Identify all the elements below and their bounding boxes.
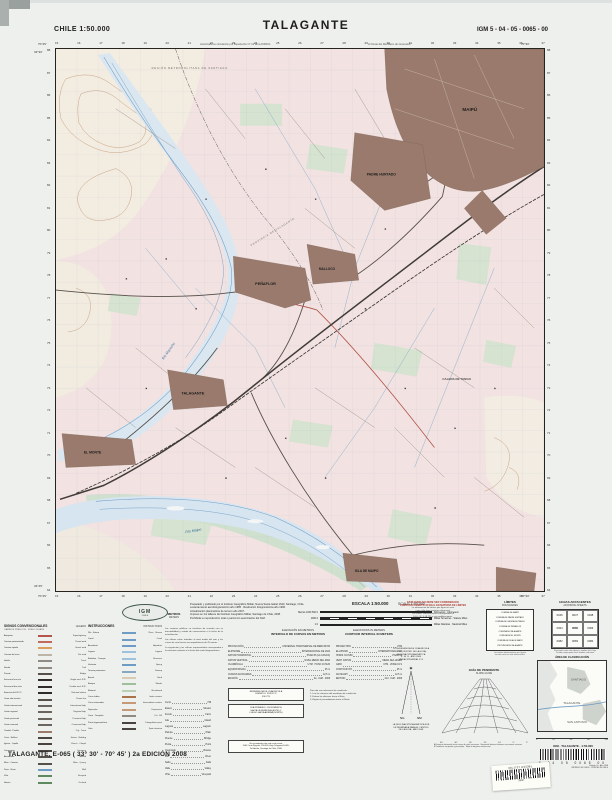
corner-nw-lon: 70°45' [38, 42, 46, 46]
refside-line: 3. Repita el procedimiento hacia el Nort… [310, 699, 382, 702]
scale-bar [320, 624, 432, 626]
grid-number: 68 [547, 498, 550, 502]
dotted-leader [171, 760, 204, 764]
declination-line: VARIACIÓN ANUAL 8´ E [388, 659, 434, 662]
legend-label-es: Límite provincial [4, 718, 36, 720]
map-label-calera: CALERA DE TANGO [442, 377, 471, 381]
grid-numbers-left: 8887868584838281807978777675747372717069… [47, 48, 50, 592]
commune-name: COMUNA DE PADRE HURTADO [487, 617, 533, 619]
legend-label-es: Autopista [4, 635, 36, 637]
legend-label-en: Vineyard [53, 775, 86, 777]
grid-number: 25 [276, 594, 279, 598]
legend-label-en: Power line [53, 698, 86, 700]
legend-label-en: Dirt road [53, 654, 86, 656]
legend-label-en: Paved road [53, 641, 86, 643]
legend-symbol [122, 645, 136, 647]
grid-number: 23 [232, 594, 235, 598]
commune-name: COMUNA DE TALAGANTE [487, 631, 533, 633]
grid-number: 18 [121, 41, 124, 45]
legend-symbol [38, 705, 52, 707]
legend-label-es: Laguna [88, 651, 120, 653]
legend-label-es: Ferrocarril dos vías [4, 686, 36, 688]
grid-number: 15 [55, 41, 58, 45]
legend-symbol [38, 679, 52, 681]
grid-reference-boxes: REFERENCIA DE CUADRÍCULAEJEMPLO: PUNTO P… [228, 688, 304, 721]
library-sticker: 33L1737 H533BL 33037 [491, 762, 551, 791]
legend-row: Cota Spot elevation [88, 726, 162, 732]
legend-label-es: Ciudad · Pueblo [4, 730, 36, 732]
legend-label-en: Canal [137, 638, 162, 640]
grid-number: 70 [47, 453, 50, 457]
meters-label: METROS METERS [162, 612, 186, 619]
legend-label-es: Estación de FF.CC. [4, 692, 36, 694]
legend-label-es: Terreno pantanoso [88, 670, 120, 672]
dotted-leader [252, 673, 322, 676]
scale-bar-left-label: Metros 1000 500 0 [282, 611, 320, 614]
grid-number: 35 [497, 41, 500, 45]
dotted-leader [343, 663, 382, 666]
meters-en: METERS [162, 616, 186, 619]
note-paragraph: Los caminos públicos se clasifican de ac… [165, 628, 223, 636]
legend-label-en: Spring [137, 664, 162, 666]
legend-symbol [38, 782, 52, 784]
legend-symbol [122, 728, 136, 730]
grid-number: 23 [232, 41, 235, 45]
legend-label-en: Sand [137, 677, 162, 679]
legend-symbol [38, 660, 52, 662]
grid-number: 67 [547, 521, 550, 525]
declination-diagram: ✶ NG NM [393, 664, 429, 722]
legend-label-en: Depression [137, 709, 162, 711]
legend-label-en: City · Town [53, 730, 86, 732]
map-label-talagante: TALAGANTE [181, 392, 204, 396]
legend-symbol [122, 683, 136, 685]
legend-symbol [38, 775, 52, 777]
map-label-penaflor: PEÑAFLOR [255, 281, 276, 286]
grid-number: 81 [47, 206, 50, 210]
marginal-notes: Los caminos públicos se clasifican de ac… [165, 628, 223, 655]
datum-table-es: PROYECCIÓN UNIVERSAL TRANSVERSAL DE MERC… [228, 645, 330, 682]
igm-logo-country: CHILE [142, 615, 148, 617]
grid-number: 66 [547, 543, 550, 547]
boundaries-panel: LÍMITES BOUNDARIES COMUNA DE MAIPÚCOMUNA… [482, 600, 538, 657]
dotted-leader [244, 645, 281, 648]
legend-label-en: Index contour [137, 696, 162, 698]
legend-label-es: Corte · Terraplén [88, 715, 120, 717]
edition-statement: TALAGANTE, E-065 ( 33° 30' - 70° 45' ) 2… [8, 751, 187, 758]
scale-title-es: ESCALA 1:50.000 [352, 601, 388, 606]
legend-label-en: Single track R.R. [53, 679, 86, 681]
citation-box: Se recomienda citar esta carta como:IGM,… [228, 740, 304, 753]
legend-label-en: Woods [137, 683, 162, 685]
legend-symbol [38, 647, 52, 649]
grid-number: 86 [547, 93, 550, 97]
barcode-bars [540, 749, 606, 760]
grid-number: 81 [547, 206, 550, 210]
legend-label-es: Línea alta tensión [4, 698, 36, 700]
legend-label-es: Pozo · Noria [4, 769, 36, 771]
legend-symbol [38, 763, 52, 765]
legend-symbol [38, 635, 52, 637]
dotted-leader [244, 663, 307, 666]
map-label-isla-de-maipo: ISLA DE MAIPO [355, 569, 379, 573]
legend-label-es: Matorral [88, 690, 120, 692]
datum-row: EDICIÓN 2a · IGM · 2008 [228, 677, 330, 682]
note-paragraph: La vegetación y los cultivos representad… [165, 647, 223, 653]
grid-number: 84 [547, 138, 550, 142]
legend-label-en: Provincial bdy. [53, 718, 86, 720]
grid-number: 79 [47, 251, 50, 255]
legend-symbol [38, 711, 52, 713]
note-paragraph: Las alturas están referidas al nivel med… [165, 639, 223, 645]
scale-bar-right-label: Millas Náuticas · Nautical Miles [432, 623, 467, 626]
slope-guide-panel: GUÍA DE PENDIENTE SLOPE GUIDE 45°30°20°1… [434, 668, 534, 749]
grid-number: 32 [431, 41, 434, 45]
grid-number: 32 [431, 594, 434, 598]
legend-label-es: Vertiente [88, 664, 120, 666]
instructions-panel: INSTRUCCIONES INSTRUCTIONS Río · Estero … [88, 624, 162, 732]
vocabulary-list: Cerro Hill Estero Stream Fundo Farm Isla… [165, 700, 211, 778]
classification-map: SANTIAGO TALAGANTE SAN ANTONIO [537, 660, 607, 732]
legend-symbol [38, 641, 52, 643]
sheet-number: IGM 5 - 04 - 05 - 0065 - 00 [477, 27, 548, 33]
legend-label-en: Cut · Fill [137, 715, 162, 717]
legend-label-en: Well [53, 769, 86, 771]
commune-name: COMUNA DE ISLA DE MAIPO [487, 640, 533, 642]
elevation-header-es: ELEVACIÓN EN METROSINTERVALO DE CURVAS E… [250, 629, 346, 636]
commune-name: PROVINCIA DE TALAGANTE [487, 645, 533, 647]
grid-number: 67 [47, 521, 50, 525]
grid-number: 80 [47, 228, 50, 232]
grid-number: 71 [47, 431, 50, 435]
grid-number: 77 [47, 296, 50, 300]
grid-number: 34 [475, 41, 478, 45]
boundaries-note-line: en esta carta son sólo referenciales. [482, 654, 538, 656]
grid-number: 75 [547, 341, 550, 345]
datum-key: EDICIÓN [228, 677, 238, 682]
legend-label-en: Superhighway [53, 635, 86, 637]
classification-scale-label: 40 [570, 739, 572, 741]
grid-number: 78 [547, 273, 550, 277]
grid-number: 74 [547, 363, 550, 367]
adjoining-sheet-number: 0046 [552, 610, 567, 623]
dotted-leader [249, 659, 304, 662]
declination-bottom-lines: LA DECLINACIÓN MAGNÉTICA FUEDETERMINADA … [388, 724, 434, 732]
commune-name: COMUNA DE PEÑAFLOR [487, 626, 533, 628]
grid-number: 33 [453, 594, 456, 598]
grid-reference-instructions: Para dar una referencia de cuadrícula:1.… [310, 690, 382, 702]
legend-label-en: Orchard [53, 782, 86, 784]
adjoining-sheets-panel: HOJAS ADYACENTES ADJOINING SHEETS 004600… [548, 600, 602, 655]
dotted-leader [173, 712, 205, 716]
adjoining-sheet-number: 0065 [567, 622, 582, 635]
grid-number: 31 [409, 594, 412, 598]
grid-number: 66 [47, 543, 50, 547]
grid-number: 25 [276, 41, 279, 45]
grid-number: 27 [320, 594, 323, 598]
grid-number: 87 [47, 71, 50, 75]
degree-label: 2° [526, 742, 528, 744]
dotted-leader [172, 742, 204, 746]
adjoining-grid: 004600470048006400650066008200830084 [551, 609, 599, 649]
refbox-line: 330 725 [231, 696, 302, 699]
datum-value: 2a · IGM · 2008 [314, 677, 330, 682]
grid-number: 28 [342, 594, 345, 598]
grid-number: 19 [143, 41, 146, 45]
grid-number: 17 [99, 41, 102, 45]
barcode-label: IGM · TALAGANTE · 1:50.000 [538, 744, 608, 748]
instructions-title-en: INSTRUCTIONS [143, 625, 162, 628]
corner-sw-lon: 70°45' [38, 594, 46, 598]
legend-label-es: Ferrocarril una vía [4, 679, 36, 681]
legend-symbol [122, 702, 136, 704]
refbox-line: LUEGO HACIA ARRIBA (NORTE) [231, 712, 302, 715]
adjoining-sheet-number: 0048 [583, 610, 598, 623]
grid-number: 85 [47, 116, 50, 120]
legend-symbol [122, 658, 136, 660]
classification-label-a: SANTIAGO [571, 677, 587, 681]
grid-number: 76 [47, 318, 50, 322]
grid-number: 83 [47, 161, 50, 165]
grid-numbers-bottom: 1516171819202122232425262728293031323334… [55, 594, 545, 598]
legend-symbol [38, 699, 52, 701]
grid-number: 22 [210, 41, 213, 45]
slope-footnotes: A Distancia horizontal entre curvas de n… [434, 744, 534, 749]
grid-number: 77 [547, 296, 550, 300]
commune-name: COMUNA DE MAIPÚ [487, 612, 533, 614]
legend-label-es: Límite regional [4, 711, 36, 713]
dotted-leader [173, 706, 202, 710]
grid-number: 73 [547, 386, 550, 390]
grid-number: 72 [47, 408, 50, 412]
grid-number: 65 [547, 566, 550, 570]
legend-symbol [122, 651, 136, 653]
legend-label-en: Railroad station [53, 692, 86, 694]
legend-label-es: Camino pavimentado [4, 641, 36, 643]
grid-number: 30 [387, 594, 390, 598]
grid-number: 82 [547, 183, 550, 187]
dotted-leader [346, 677, 383, 680]
grid-numbers-right: 8887868584838281807978777675747372717069… [547, 48, 550, 592]
legend-label-en: Church · Chapel [53, 743, 86, 745]
map-label-maipu: MAIPÚ [462, 106, 477, 112]
grid-number: 26 [298, 594, 301, 598]
legend-title-en: LEGEND [76, 625, 86, 628]
classification-label-b: TALAGANTE [563, 701, 580, 705]
legend-label-es: Río · Estero [88, 632, 120, 634]
legend-label-es: Huella [4, 660, 36, 662]
legend-label-es: Huerto [4, 782, 36, 784]
grid-number: 17 [99, 594, 102, 598]
legend-symbol [122, 671, 136, 673]
datum-key: EDITION [336, 677, 345, 682]
dotted-leader [247, 668, 324, 671]
scan-edge-top [0, 0, 612, 3]
grid-number: 30 [387, 41, 390, 45]
grid-number: 22 [210, 594, 213, 598]
grid-number: 88 [47, 48, 50, 52]
legend-symbol [38, 769, 52, 771]
grid-number: 65 [47, 566, 50, 570]
legend-label-es: Límite internacional [4, 705, 36, 707]
grid-number: 27 [320, 41, 323, 45]
legend-label-en: Mine · Quarry [53, 762, 86, 764]
legend-label-es: Cota [88, 728, 120, 730]
grid-number: 88 [547, 48, 550, 52]
grid-number: 70 [547, 453, 550, 457]
grid-number: 20 [166, 41, 169, 45]
legend-symbol [38, 673, 52, 675]
legend-symbol [122, 677, 136, 679]
legend-symbol [38, 731, 52, 733]
grid-reference-box-1: REFERENCIA DE CUADRÍCULAEJEMPLO: PUNTO P… [228, 688, 304, 701]
grid-number: 74 [47, 363, 50, 367]
grid-number: 79 [547, 251, 550, 255]
legend-symbol [38, 654, 52, 656]
corner-lat-north: 33°30' [34, 50, 42, 54]
legend-row: Huerto Orchard [4, 779, 86, 785]
topographic-map: MAIPÚ PADRE HURTADO MALLOCO PEÑAFLOR TAL… [56, 49, 544, 591]
legend-label-en: Communal bdy. [53, 724, 86, 726]
legend-panel: SIGNOS CONVENCIONALES LEGEND CAMINOS PÚB… [4, 624, 86, 786]
legend-label-en: Reservoir [137, 658, 162, 660]
grid-number: 82 [47, 183, 50, 187]
scale-bar-left-label: 1 0 [282, 623, 320, 626]
grid-number: 35 [497, 594, 500, 598]
dotted-leader [352, 659, 381, 662]
grid-number: 78 [47, 273, 50, 277]
grid-numbers-top: 1516171819202122232425262728293031323334… [55, 41, 545, 45]
dotted-leader [174, 736, 204, 740]
dotted-leader [349, 650, 377, 653]
legend-label-en: International bdy. [53, 705, 86, 707]
legend-symbol [122, 639, 136, 641]
adjoining-sheet-number: 0064 [552, 622, 567, 635]
grid-number: 34 [475, 594, 478, 598]
map-label-padre-hurtado: PADRE HURTADO [367, 173, 396, 177]
legend-label-en: House · Building [53, 737, 86, 739]
legend-label-en: Spot elevation [137, 728, 162, 730]
adjoining-sheet-number: 0084 [583, 635, 598, 648]
grid-number: 76 [547, 318, 550, 322]
classification-panel: ÁREA DE CLASIFICACIÓN SANTIAGO TALAGANTE… [536, 656, 608, 741]
instructions-title-es: INSTRUCCIONES [88, 624, 114, 628]
warning-black-lines: La información de límites que figura en … [392, 607, 474, 618]
grid-number: 33 [453, 41, 456, 45]
legend-label-es: Bosque [88, 683, 120, 685]
scale-bar-left-label: 1000 0 [282, 617, 320, 620]
legend-symbol [38, 737, 52, 739]
legend-label-en: River · Stream [137, 632, 162, 634]
classification-scale-label: Km [605, 739, 608, 741]
map-body[interactable]: MAIPÚ PADRE HURTADO MALLOCO PEÑAFLOR TAL… [55, 48, 545, 592]
grid-number: 64 [547, 588, 550, 592]
grid-number: 26 [298, 41, 301, 45]
instructions-rows: Río · Estero River · Stream Canal Canal … [88, 630, 162, 732]
grid-number: 24 [254, 41, 257, 45]
dotted-leader [174, 730, 205, 734]
legend-label-es: Arenal [88, 677, 120, 679]
legend-label-en: Regional bdy. [53, 711, 86, 713]
dotted-leader [353, 654, 391, 657]
declination-line: DE LA HOJA · AÑO 2008 [388, 729, 434, 732]
dotted-leader [171, 766, 204, 770]
legend-symbol [38, 667, 52, 669]
adjoining-note-line: To order maps quote sheet number and nam… [548, 652, 602, 654]
grid-number: 85 [547, 116, 550, 120]
grid-number: 83 [547, 161, 550, 165]
legend-symbol [122, 632, 136, 634]
legend-symbol [38, 743, 52, 745]
grid-number: 19 [143, 594, 146, 598]
elevation-header-line: INTERVALO DE CURVAS EN METROS [250, 632, 346, 636]
adjoining-sheet-number: 0047 [567, 610, 582, 623]
classification-scale: 0204060Km [536, 738, 608, 741]
warning-black-line: D.F.L. N° 3-18.715 y sus modificaciones. [392, 616, 474, 619]
commune-name: COMUNA DE EL MONTE [487, 635, 533, 637]
grid-number: 84 [47, 138, 50, 142]
citation-line: 2a Edición, Santiago de Chile, 2008. [231, 748, 302, 751]
boundary-warning: ESTE MAPA NO DEBE SER CONSIDERADOCOMO DO… [392, 601, 474, 618]
grid-number: 16 [77, 594, 80, 598]
legend-symbol [38, 686, 52, 688]
vocab-en: Vineyard [202, 772, 211, 778]
grid-number: 18 [121, 594, 124, 598]
classification-scale-label: 60 [587, 739, 589, 741]
grid-number: 36 [519, 594, 522, 598]
dotted-leader [174, 724, 202, 728]
grid-reference-box-2: LEA PRIMERO LOS NÚMEROSHACIA LA DERECHA … [228, 704, 304, 717]
vocab-row: Viña Vineyard [165, 772, 211, 778]
declination-panel: CONVERGENCIA DE CUADRÍCULA1° 15´ (CENTRO… [388, 648, 434, 732]
legend-subtitle: CAMINOS PÚBLICOS · PUBLIC ROADS [4, 629, 86, 631]
dotted-leader [239, 677, 313, 680]
adjoining-sheet-number: 0066 [583, 622, 598, 635]
grid-number: 86 [47, 93, 50, 97]
commune-name: COMUNA DE CALERA DE TANGO [487, 621, 533, 623]
grid-number: 64 [47, 588, 50, 592]
slope-guide-fan [436, 675, 532, 737]
legend-symbol [122, 664, 136, 666]
dotted-leader [172, 700, 207, 704]
legend-symbol [122, 696, 136, 698]
classification-scale-label: 0 [536, 739, 537, 741]
legend-label-es: Camino ripiado [4, 647, 36, 649]
vocab-es: Viña [165, 772, 170, 778]
legend-label-es: Punto trigonométrico [88, 722, 120, 724]
boundaries-title-en: BOUNDARIES [482, 604, 538, 607]
map-label-el-monte: EL MONTE [84, 451, 102, 455]
legend-symbol [38, 718, 52, 720]
legend-label-en: Bridge [53, 673, 86, 675]
grid-number: 29 [365, 41, 368, 45]
grid-number: 75 [47, 341, 50, 345]
dotted-leader [241, 650, 301, 653]
grid-north-label: NG [400, 716, 405, 720]
legend-label-es: Puente [4, 673, 36, 675]
legend-label-en: Brushwood [137, 690, 162, 692]
scale-bar-row: 1 0 Millas Náuticas · Nautical Miles [282, 622, 478, 628]
legend-label-en: Intermediate contour [137, 702, 162, 704]
adjoining-title-en: ADJOINING SHEETS [548, 604, 602, 607]
legend-label-es: Senda [4, 667, 36, 669]
map-sheet: CHILE 1:50.000 TALAGANTE IGM 5 - 04 - 05… [0, 0, 612, 800]
grid-number: 21 [188, 594, 191, 598]
map-label-malloco: MALLOCO [319, 267, 336, 271]
grid-number: 24 [254, 594, 257, 598]
legend-label-es: Embalse · Tranque [88, 658, 120, 660]
grid-number: 31 [409, 41, 412, 45]
